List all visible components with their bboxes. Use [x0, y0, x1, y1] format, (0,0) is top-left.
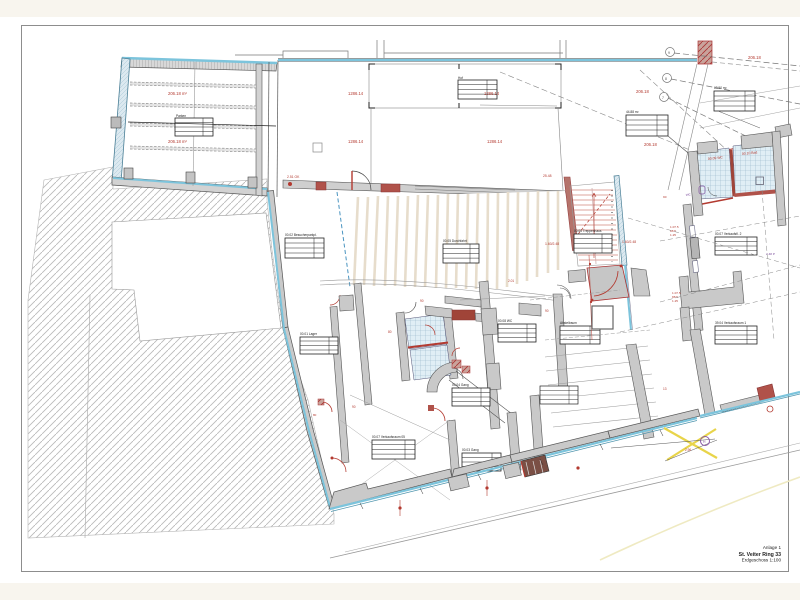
svg-text:39.04 Verkaufsraum 1: 39.04 Verkaufsraum 1 [715, 321, 746, 325]
svg-text:00.03 Gang: 00.03 Gang [462, 448, 479, 452]
svg-text:00.04 Gang: 00.04 Gang [452, 383, 469, 387]
svg-text:2.51 OK: 2.51 OK [287, 175, 300, 179]
svg-text:1286.14: 1286.14 [484, 91, 500, 96]
svg-text:2.01: 2.01 [508, 279, 514, 283]
svg-text:80: 80 [313, 413, 317, 417]
svg-text:25.48: 25.48 [543, 174, 552, 178]
svg-text:1286.14: 1286.14 [348, 139, 364, 144]
svg-text:44.88 m²: 44.88 m² [626, 110, 639, 114]
svg-text:90: 90 [663, 195, 667, 199]
svg-text:Hof: Hof [458, 76, 463, 80]
svg-text:1286.14: 1286.14 [348, 91, 364, 96]
svg-text:Abstellraum: Abstellraum [560, 321, 577, 325]
svg-text:00.01 Lager: 00.01 Lager [300, 332, 318, 336]
svg-text:90: 90 [420, 299, 424, 303]
svg-text:00.08 WC: 00.08 WC [498, 319, 513, 323]
svg-text:00.02 Besucherparkpl.: 00.02 Besucherparkpl. [285, 233, 317, 237]
svg-text:00.07 Verkaufsraum 05: 00.07 Verkaufsraum 05 [372, 435, 405, 439]
svg-text:00.06 Treppenhaus: 00.06 Treppenhaus [574, 229, 602, 233]
svg-text:206.18 m²: 206.18 m² [168, 91, 187, 96]
svg-text:2.96: 2.96 [685, 448, 691, 452]
svg-text:9: 9 [668, 51, 670, 55]
svg-text:7: 7 [662, 96, 664, 100]
svg-text:1.60/2.48: 1.60/2.48 [545, 242, 559, 246]
svg-text:90: 90 [545, 309, 549, 313]
svg-text:Parken: Parken [176, 114, 186, 118]
svg-text:206.18: 206.18 [636, 89, 649, 94]
svg-text:1286.14: 1286.14 [487, 139, 503, 144]
svg-text:90: 90 [352, 405, 356, 409]
svg-text:63.90 m²: 63.90 m² [714, 86, 727, 90]
svg-text:13: 13 [663, 387, 667, 391]
svg-text:00.05 Durchfahrt: 00.05 Durchfahrt [443, 239, 467, 243]
svg-text:80: 80 [388, 330, 392, 334]
svg-text:1.25: 1.25 [672, 299, 678, 303]
svg-text:1.25: 1.25 [670, 233, 676, 237]
svg-text:206.18: 206.18 [748, 55, 761, 60]
svg-text:00.07 Verkaufsfl. 2: 00.07 Verkaufsfl. 2 [715, 232, 742, 236]
svg-text:1.60/2.48: 1.60/2.48 [622, 240, 636, 244]
svg-text:206.18: 206.18 [644, 142, 657, 147]
svg-text:Anlage 1: Anlage 1 [763, 545, 782, 550]
svg-text:206.18 m²: 206.18 m² [168, 139, 187, 144]
svg-text:8: 8 [665, 77, 667, 81]
svg-text:Erdgeschoss 1:100: Erdgeschoss 1:100 [742, 558, 782, 563]
